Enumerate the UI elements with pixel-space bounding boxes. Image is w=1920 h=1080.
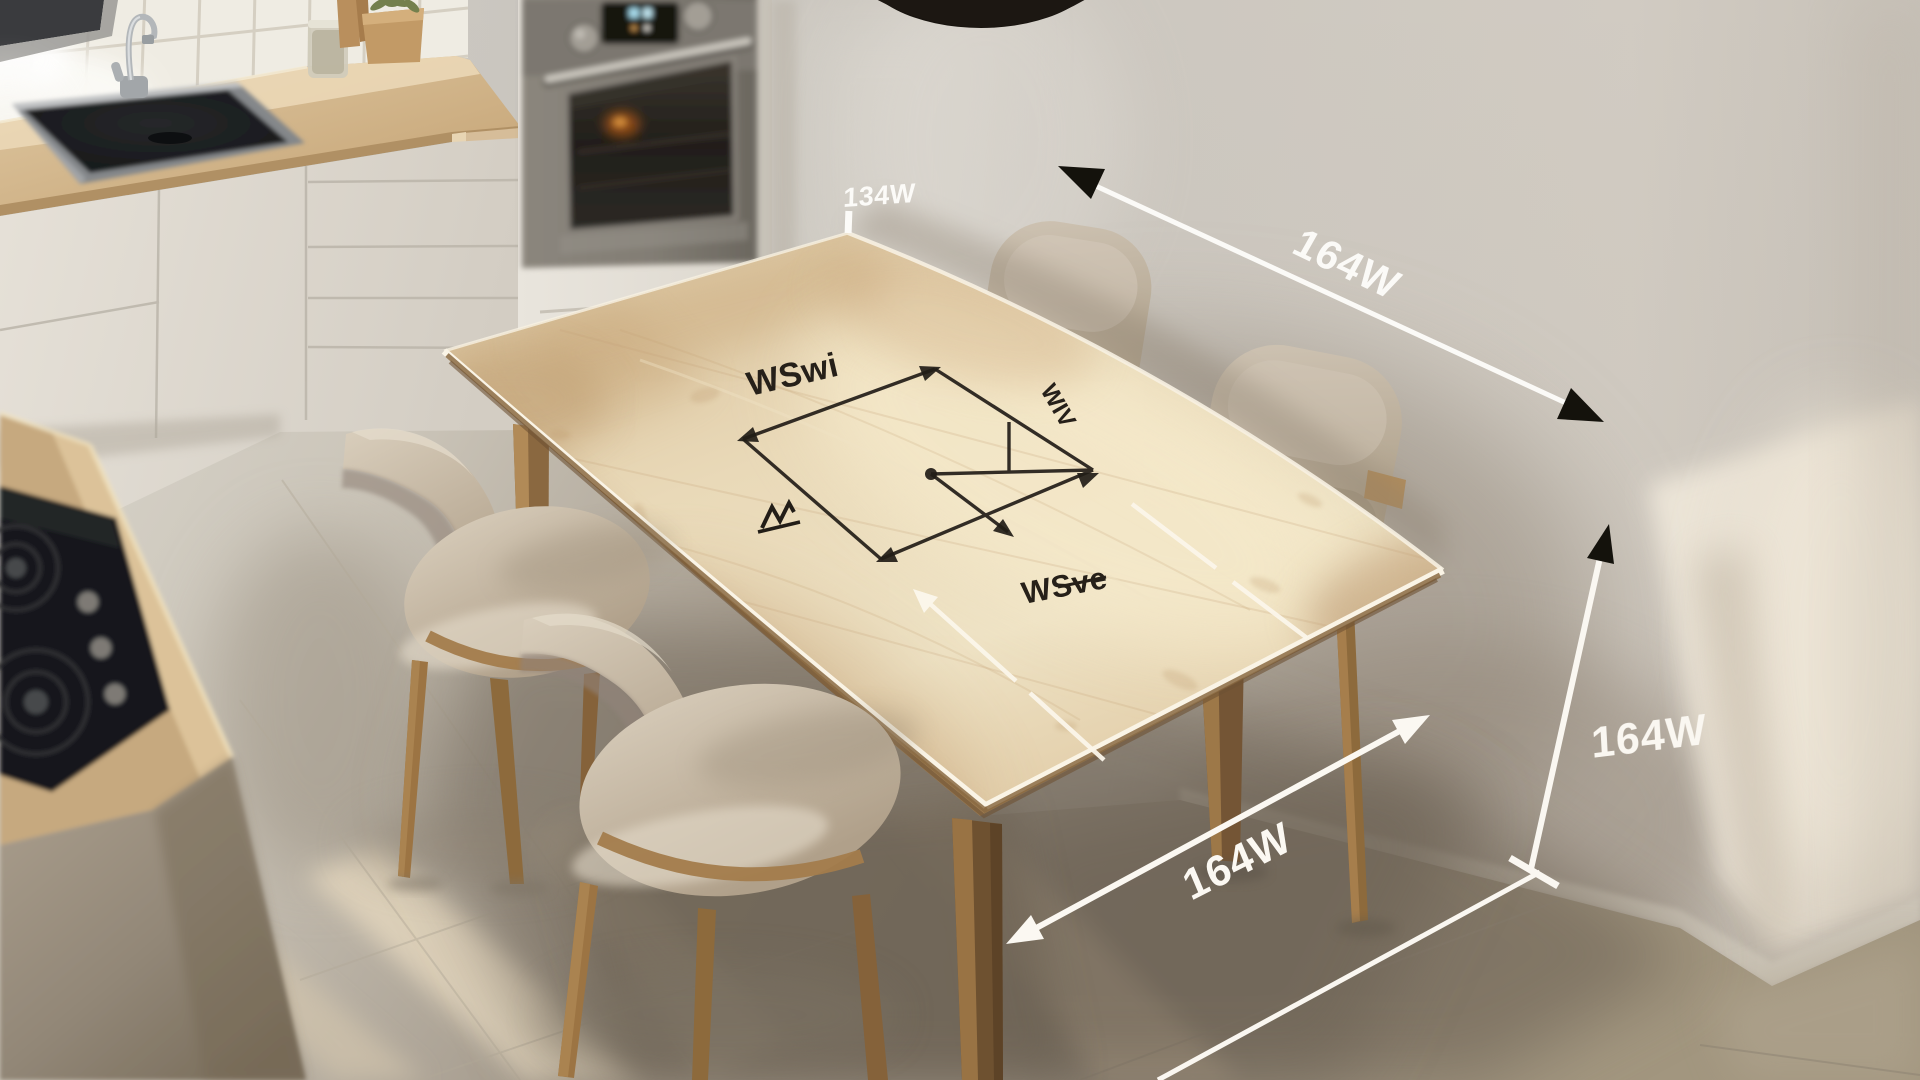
- svg-text:134W: 134W: [843, 177, 916, 213]
